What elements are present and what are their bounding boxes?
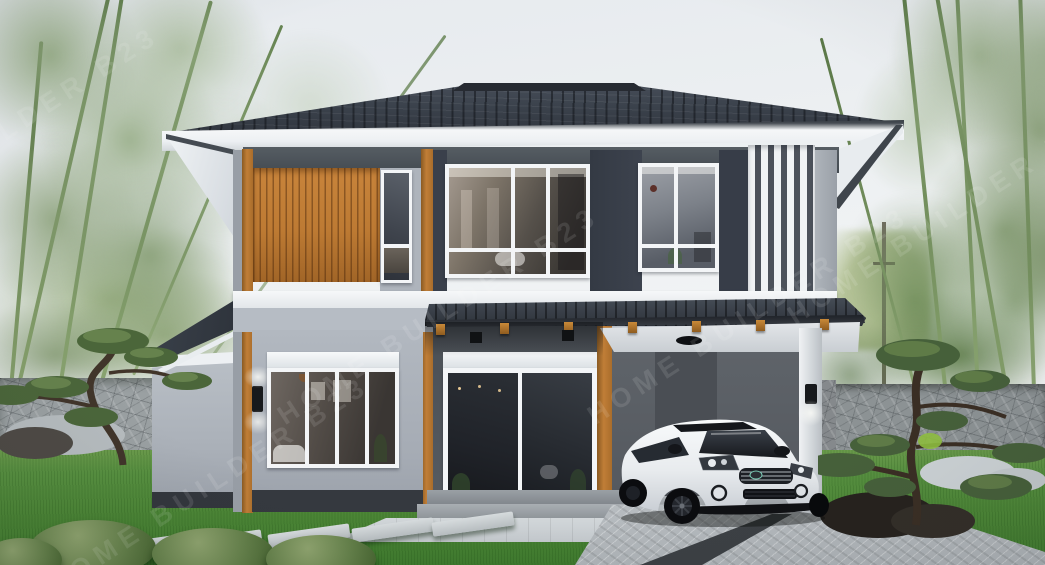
upper-study-window — [638, 163, 719, 272]
ceiling-downlight — [676, 336, 702, 345]
bonsai-pine-left — [0, 295, 245, 480]
white-louver-screen — [748, 145, 815, 303]
corner-sliver-right — [815, 150, 837, 308]
annex-plinth — [152, 492, 244, 508]
wall-sconce — [252, 386, 263, 412]
shutter-box — [267, 352, 399, 368]
stair-window — [381, 170, 412, 283]
door-glass-left — [448, 373, 518, 497]
upper-bedroom-window — [445, 164, 590, 278]
rafter-tail — [628, 322, 637, 333]
rafter-tail — [692, 321, 701, 332]
architectural-render: HOME BUILDER B23 HOME BUILDER B23 HOME B… — [0, 0, 1045, 565]
awning-shadow — [425, 322, 603, 356]
spotlight — [470, 332, 482, 343]
study-window-glass — [642, 167, 715, 268]
roof-ridge-cap — [452, 83, 646, 91]
living-window-glass — [271, 372, 395, 464]
spotlight — [562, 330, 574, 341]
entrance-sliding-door — [443, 368, 597, 502]
living-room-window — [267, 368, 399, 468]
bedroom-window-glass — [449, 168, 586, 274]
stair-window-glass — [384, 173, 409, 280]
rafter-tail — [436, 324, 445, 335]
door-glass-right — [522, 373, 592, 497]
bonsai-pine-right — [818, 325, 1045, 550]
dark-panel-b — [590, 150, 642, 293]
white-suv — [615, 411, 833, 529]
rafter-tail — [756, 320, 765, 331]
ground-plinth-left — [252, 490, 423, 512]
dark-panel-c — [719, 150, 748, 293]
rafter-tail — [500, 323, 509, 334]
wood-slat-facade — [253, 168, 380, 282]
